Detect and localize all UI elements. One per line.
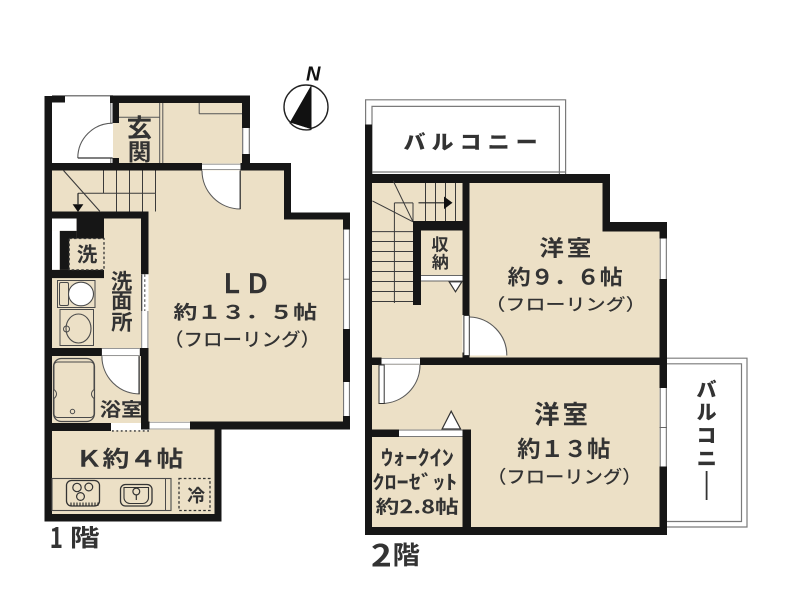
svg-text:N: N (306, 64, 321, 86)
